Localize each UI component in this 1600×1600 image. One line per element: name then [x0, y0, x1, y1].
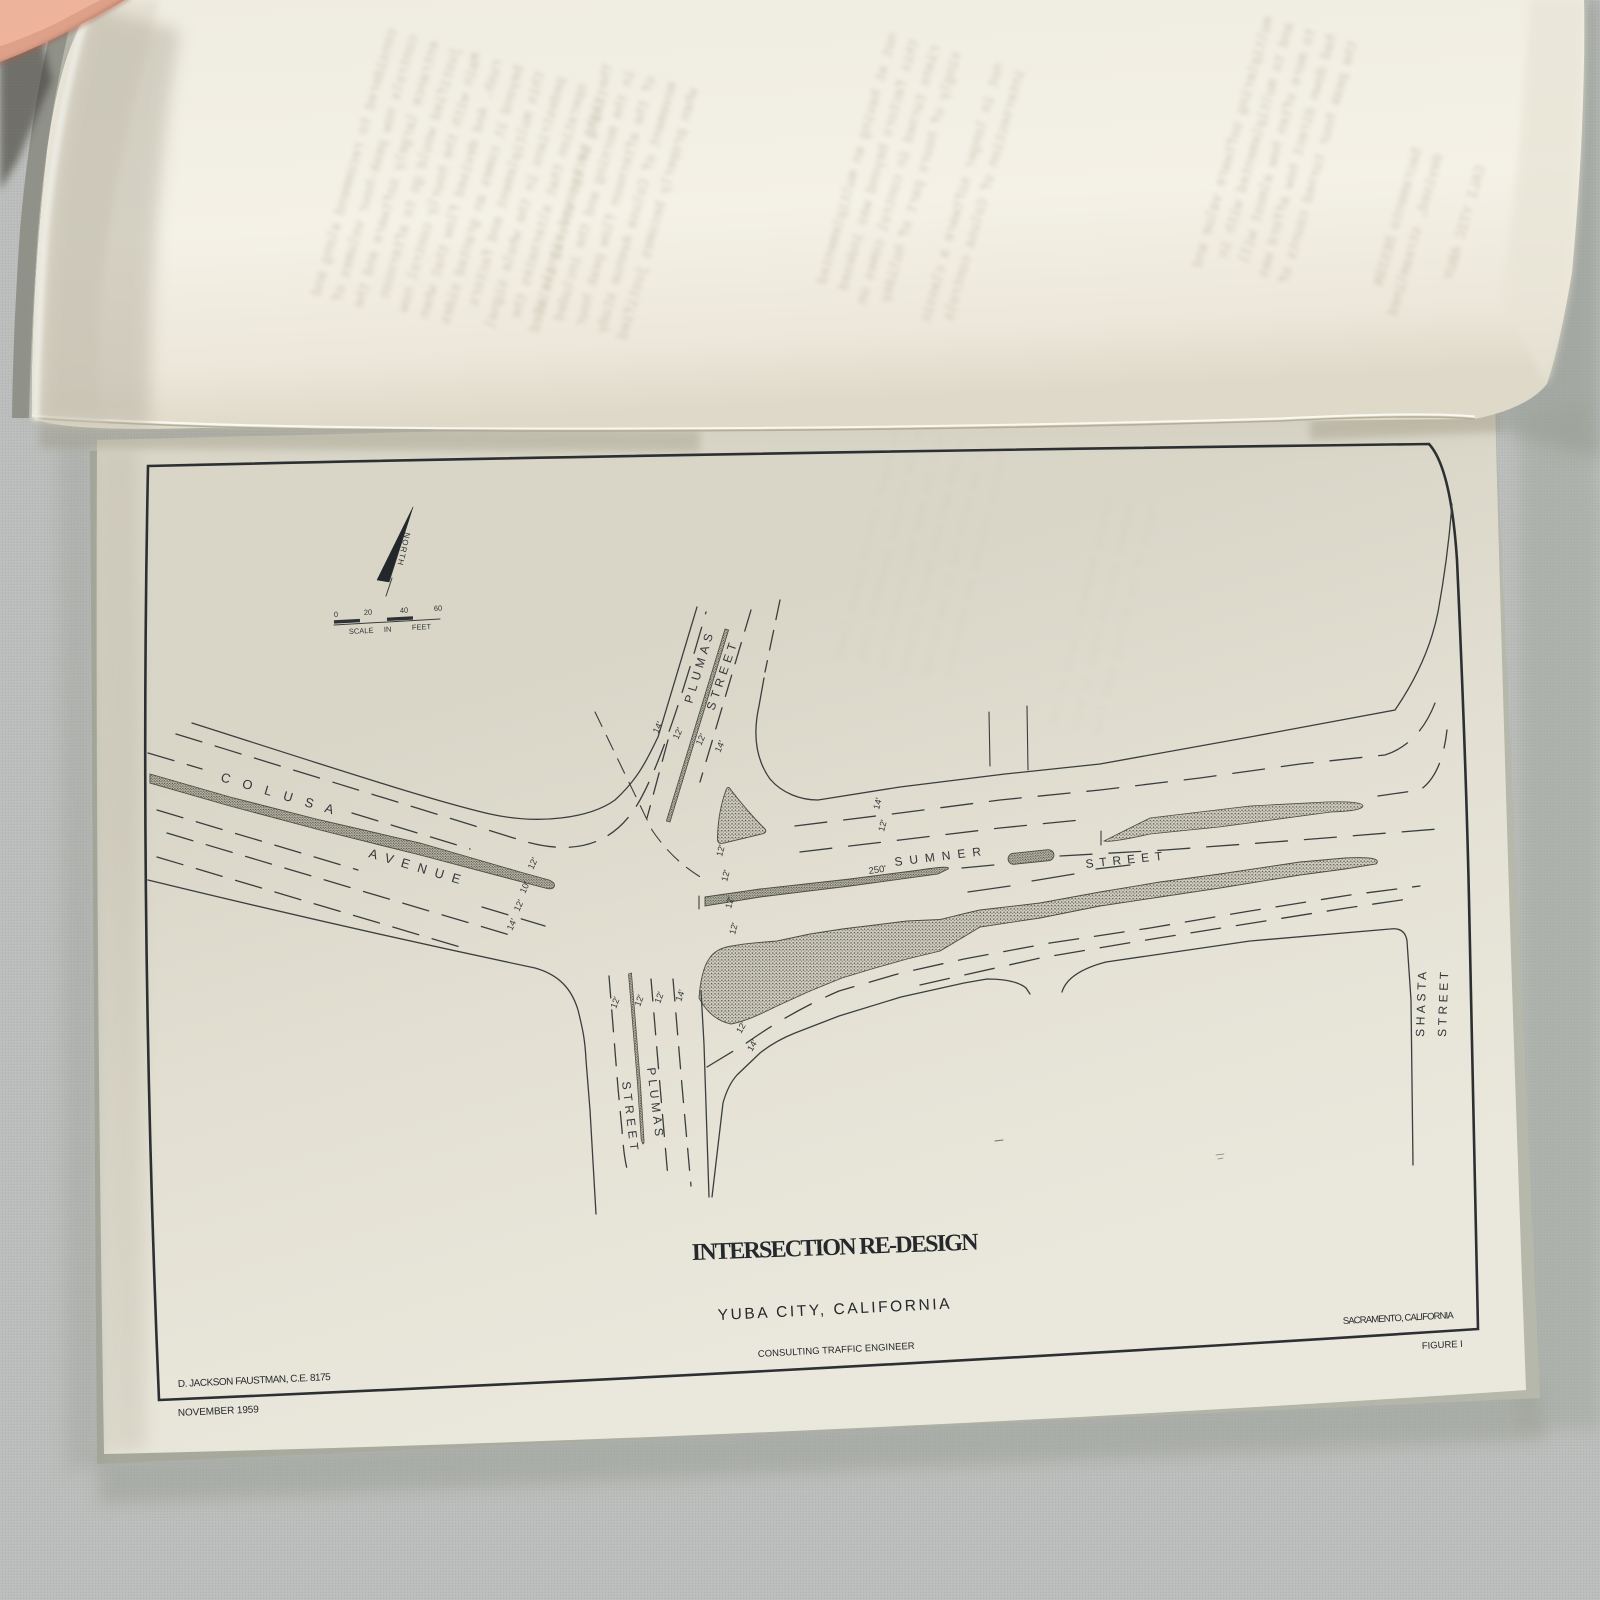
svg-text:40: 40 [400, 606, 409, 615]
svg-text:FIGURE I: FIGURE I [1422, 1339, 1464, 1352]
svg-text:FEET: FEET [412, 622, 432, 632]
svg-text:60: 60 [434, 604, 443, 613]
svg-text:20: 20 [364, 608, 373, 617]
svg-text:0: 0 [334, 610, 339, 619]
svg-text:STREET: STREET [1435, 969, 1451, 1037]
svg-text:SCALE: SCALE [349, 626, 374, 636]
svg-text:SHASTA: SHASTA [1413, 969, 1429, 1037]
svg-text:IN: IN [384, 625, 392, 634]
